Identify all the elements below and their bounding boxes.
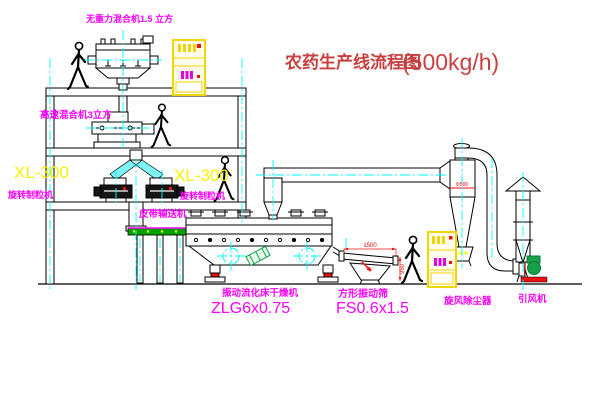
v-chute-right — [136, 160, 163, 180]
cyclone — [450, 144, 522, 275]
granulator-left-body — [94, 185, 132, 202]
label-fan: 引风机 — [518, 293, 547, 305]
label-gravity-mixer: 无重力混合机1.5 立方 — [85, 13, 173, 24]
title-text: 农药生产线流程图 — [284, 52, 421, 72]
flow-diagram: 无重力混合机1.5 立方 高速混合机3立方 XL-300 旋转制粒机 XL-30… — [0, 0, 600, 403]
label-dim-950: 950 — [400, 263, 406, 274]
label-high-speed-mixer: 高速混合机3立方 — [40, 109, 112, 121]
person-figure — [152, 104, 170, 147]
vibrating-sieve — [333, 247, 401, 284]
label-dim-1500: 1500 — [363, 243, 377, 249]
dryer-leg-left — [205, 265, 225, 282]
label-cyclone: 旋风除尘器 — [443, 295, 492, 307]
person-figure — [402, 236, 422, 283]
floor-slab-1 — [46, 88, 246, 96]
control-cabinet-top — [173, 40, 205, 95]
label-granulator-model-right: XL-300 — [174, 166, 229, 185]
label-dryer-model: ZLG6x0.75 — [211, 300, 290, 317]
diagram-title: 农药生产线流程图 (500kg/h) — [284, 49, 499, 75]
label-cyclone-dim: Φ500 — [456, 182, 469, 188]
floor-slab-2 — [46, 148, 246, 156]
label-dryer-name: 振动流化床干燥机 — [222, 287, 299, 299]
spring-mounts — [188, 210, 328, 216]
label-sieve-model: FS0.6x1.5 — [336, 300, 409, 317]
granulator-right-body — [146, 185, 184, 202]
dryer-leg-right — [318, 265, 338, 282]
label-granulator-model-left: XL-300 — [14, 163, 69, 182]
control-cabinet-ground — [428, 232, 456, 287]
person-figure — [68, 42, 88, 89]
label-granulator-name-left: 旋转制粒机 — [7, 189, 53, 200]
label-sieve-name: 方形振动筛 — [338, 287, 388, 300]
title-capacity: (500kg/h) — [402, 49, 499, 75]
diagram-canvas: 无重力混合机1.5 立方 高速混合机3立方 XL-300 旋转制粒机 XL-30… — [0, 0, 600, 403]
v-chute-left — [110, 160, 136, 180]
label-granulator-name-right: 旋转制粒机 — [179, 190, 225, 201]
label-belt-conveyor: 皮带输送机 — [138, 208, 187, 220]
fluid-bed-dryer — [186, 210, 338, 282]
